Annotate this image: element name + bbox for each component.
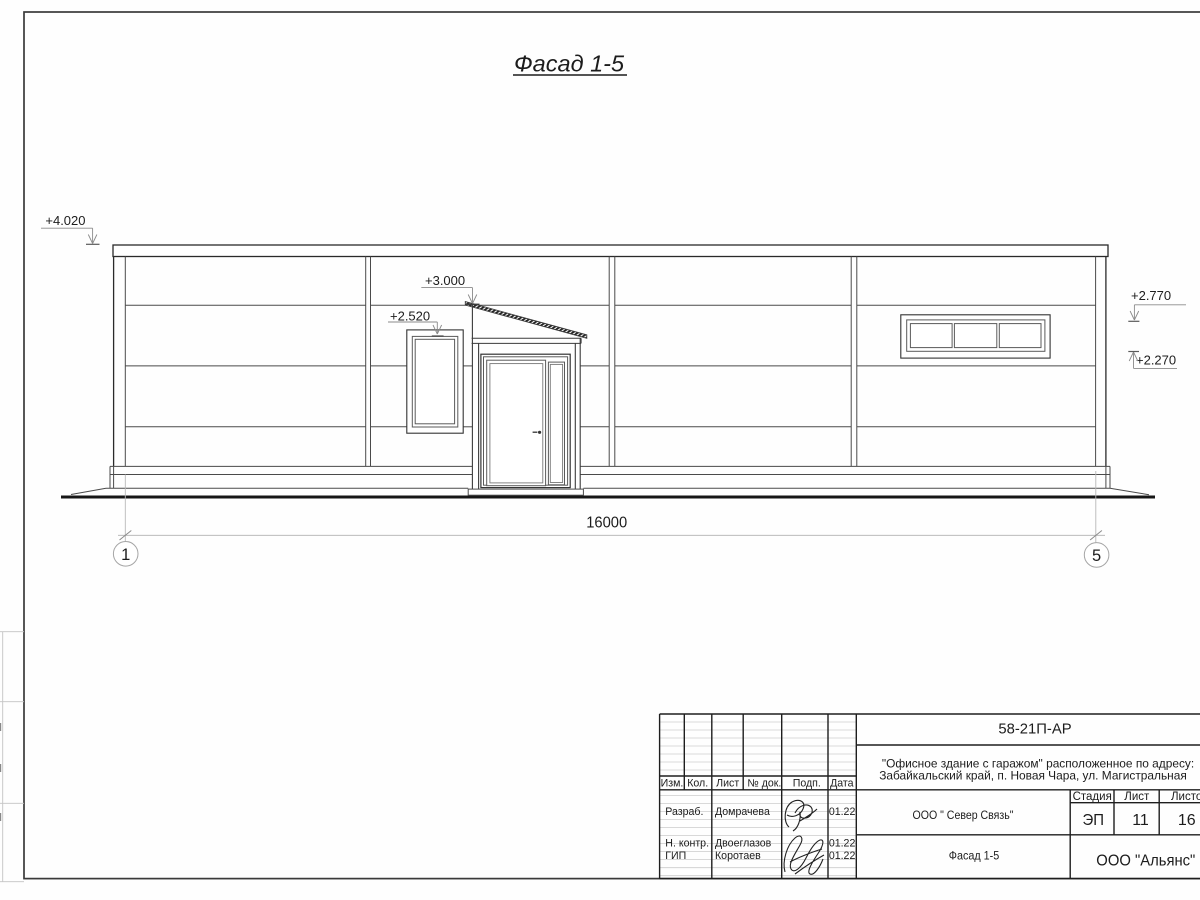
- svg-text:Подп.: Подп.: [793, 778, 821, 790]
- svg-text:ООО "Альянс": ООО "Альянс": [1096, 853, 1195, 870]
- svg-text:+2.770: +2.770: [1131, 288, 1171, 303]
- svg-text:16: 16: [1178, 812, 1196, 829]
- svg-text:Фасад 1-5: Фасад 1-5: [514, 51, 625, 77]
- svg-text:Домрачева: Домрачева: [715, 806, 770, 818]
- svg-text:Кол.: Кол.: [687, 778, 708, 790]
- svg-text:+4.020: +4.020: [45, 213, 85, 228]
- svg-text:ГИП: ГИП: [665, 850, 686, 862]
- svg-text:Н. контр.: Н. контр.: [665, 838, 709, 850]
- svg-text:Дата: Дата: [830, 778, 854, 790]
- svg-text:Стадия: Стадия: [1073, 791, 1112, 803]
- svg-text:58-21П-АР: 58-21П-АР: [998, 722, 1071, 738]
- svg-text:01.22: 01.22: [829, 838, 856, 850]
- svg-text:01.22: 01.22: [829, 850, 856, 862]
- svg-text:1: 1: [121, 546, 130, 564]
- svg-text:Двоеглазов: Двоеглазов: [715, 838, 772, 850]
- svg-text:Лист: Лист: [716, 778, 739, 790]
- svg-text:Забайкальский край, п. Новая Ч: Забайкальский край, п. Новая Чара, ул. М…: [879, 769, 1187, 783]
- svg-text:ЭП: ЭП: [1082, 812, 1104, 829]
- svg-text:11: 11: [1132, 812, 1149, 829]
- svg-text:Разраб.: Разраб.: [665, 806, 703, 818]
- svg-text:Лист: Лист: [1124, 791, 1150, 803]
- svg-text:5: 5: [1092, 547, 1101, 565]
- svg-text:+2.270: +2.270: [1136, 353, 1176, 368]
- svg-text:+3.000: +3.000: [425, 273, 465, 288]
- svg-text:+2.520: +2.520: [390, 308, 430, 323]
- svg-text:№ док.: № док.: [747, 778, 781, 790]
- svg-text:01.22: 01.22: [829, 806, 856, 818]
- svg-text:Коротаев: Коротаев: [715, 850, 761, 862]
- svg-text:Фасад 1-5: Фасад 1-5: [949, 849, 1000, 863]
- svg-text:ООО " Север Связь": ООО " Север Связь": [913, 808, 1014, 822]
- svg-text:Листов: Листов: [1171, 791, 1200, 803]
- svg-text:Изм.: Изм.: [661, 778, 684, 790]
- svg-text:16000: 16000: [586, 515, 627, 532]
